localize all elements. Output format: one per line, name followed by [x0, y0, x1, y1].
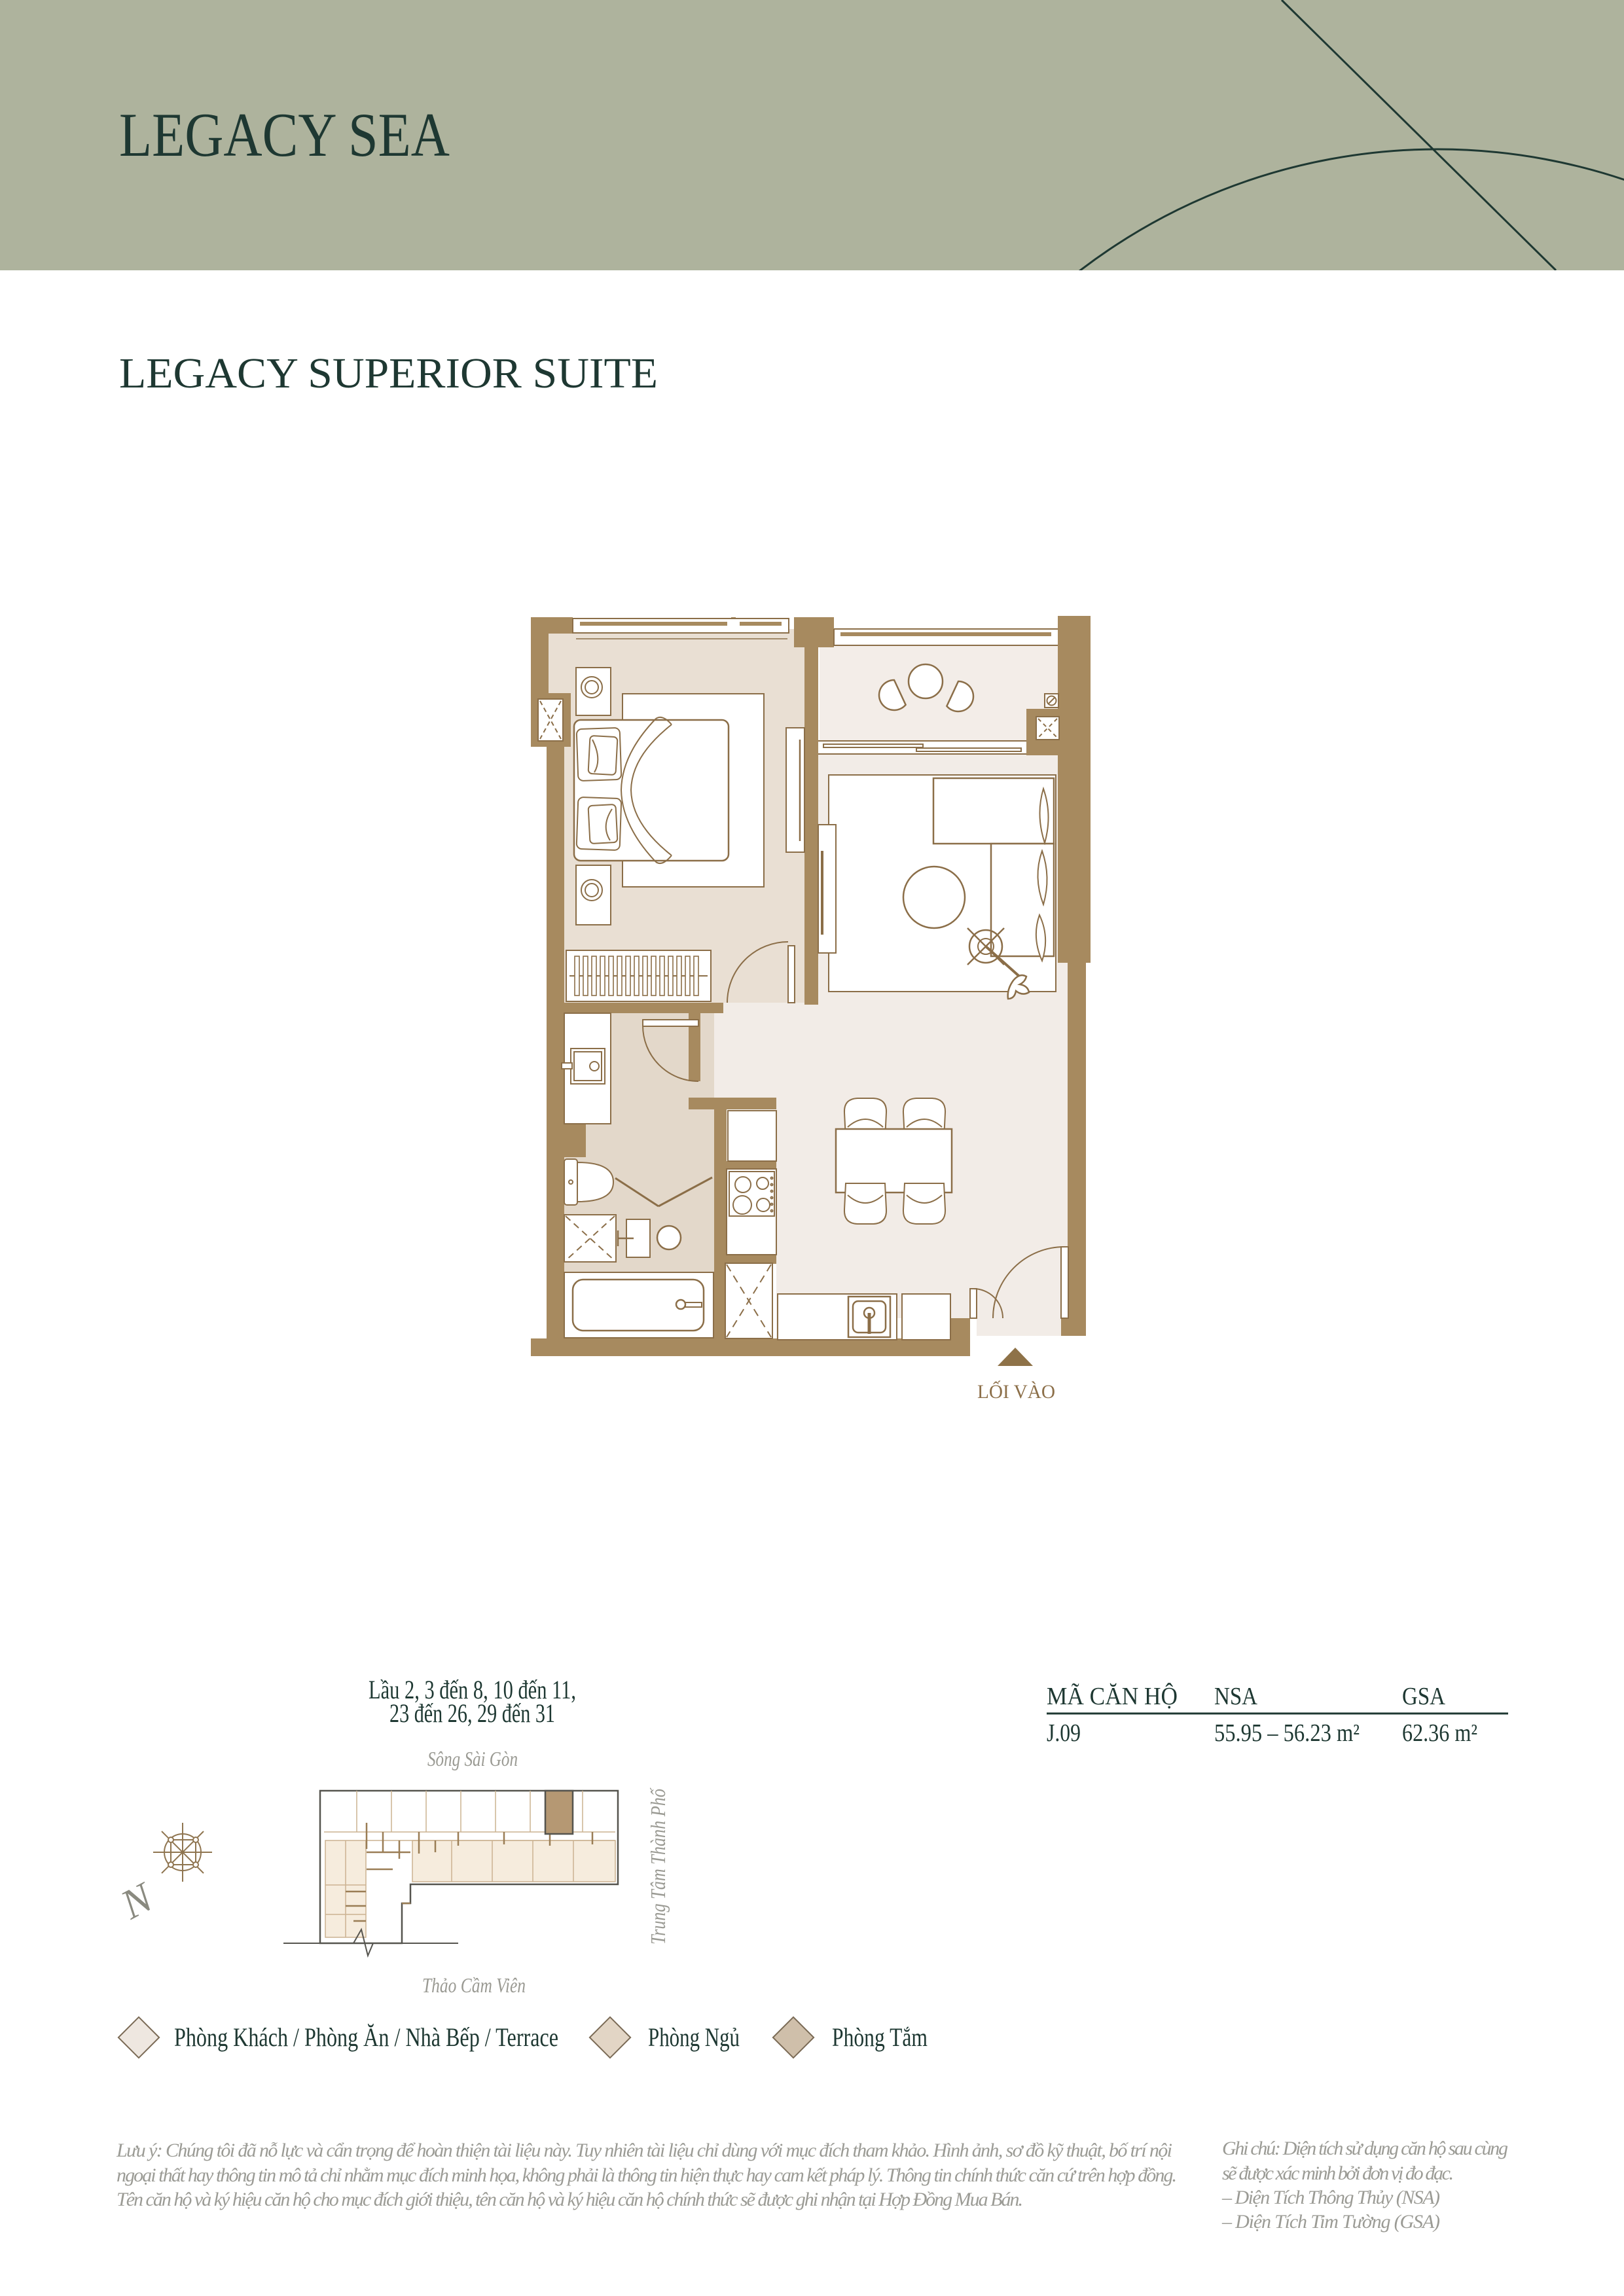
svg-text:55.95 – 56.23 m²: 55.95 – 56.23 m² [1214, 1719, 1360, 1747]
svg-text:ngoại thất hay thông tin mô tả: ngoại thất hay thông tin mô tả chỉ nhằm … [117, 2164, 1177, 2186]
svg-text:– Diện Tích Thông Thủy (NSA): – Diện Tích Thông Thủy (NSA) [1221, 2187, 1440, 2208]
svg-text:Phòng Tắm: Phòng Tắm [832, 2022, 928, 2052]
svg-text:Ghi chú: Diện tích sử dụng căn: Ghi chú: Diện tích sử dụng căn hộ sau cù… [1222, 2138, 1508, 2159]
svg-text:Phòng Khách / Phòng Ăn / Nhà B: Phòng Khách / Phòng Ăn / Nhà Bếp / Terra… [174, 2022, 558, 2052]
svg-text:NSA: NSA [1214, 1683, 1257, 1710]
svg-text:LEGACY SUPERIOR SUITE: LEGACY SUPERIOR SUITE [119, 350, 658, 397]
svg-text:Tên căn hộ và ký hiệu căn hộ c: Tên căn hộ và ký hiệu căn hộ cho mục đíc… [117, 2189, 1023, 2210]
svg-text:Thảo Cầm Viên: Thảo Cầm Viên [422, 1973, 526, 1997]
svg-text:Lưu ý: Chúng tôi đã nỗ lực và: Lưu ý: Chúng tôi đã nỗ lực và cẩn trọng … [116, 2140, 1172, 2161]
svg-text:LỐI VÀO: LỐI VÀO [977, 1380, 1055, 1403]
svg-text:62.36 m²: 62.36 m² [1402, 1719, 1477, 1747]
svg-text:sẽ được xác minh bởi đơn vị đo: sẽ được xác minh bởi đơn vị đo đạc. [1222, 2162, 1454, 2184]
svg-text:Phòng Ngủ: Phòng Ngủ [648, 2022, 740, 2052]
svg-text:Trung Tâm Thành Phố: Trung Tâm Thành Phố [646, 1787, 670, 1945]
svg-text:MÃ CĂN HỘ: MÃ CĂN HỘ [1047, 1683, 1178, 1710]
svg-text:LEGACY SEA: LEGACY SEA [119, 100, 450, 170]
svg-text:23 đến 26, 29 đến 31: 23 đến 26, 29 đến 31 [389, 1698, 555, 1728]
svg-text:– Diện Tích Tim Tường (GSA): – Diện Tích Tim Tường (GSA) [1221, 2211, 1440, 2233]
svg-text:GSA: GSA [1402, 1683, 1445, 1710]
svg-text:Sông Sài Gòn: Sông Sài Gòn [427, 1747, 518, 1770]
svg-text:J.09: J.09 [1047, 1719, 1081, 1747]
